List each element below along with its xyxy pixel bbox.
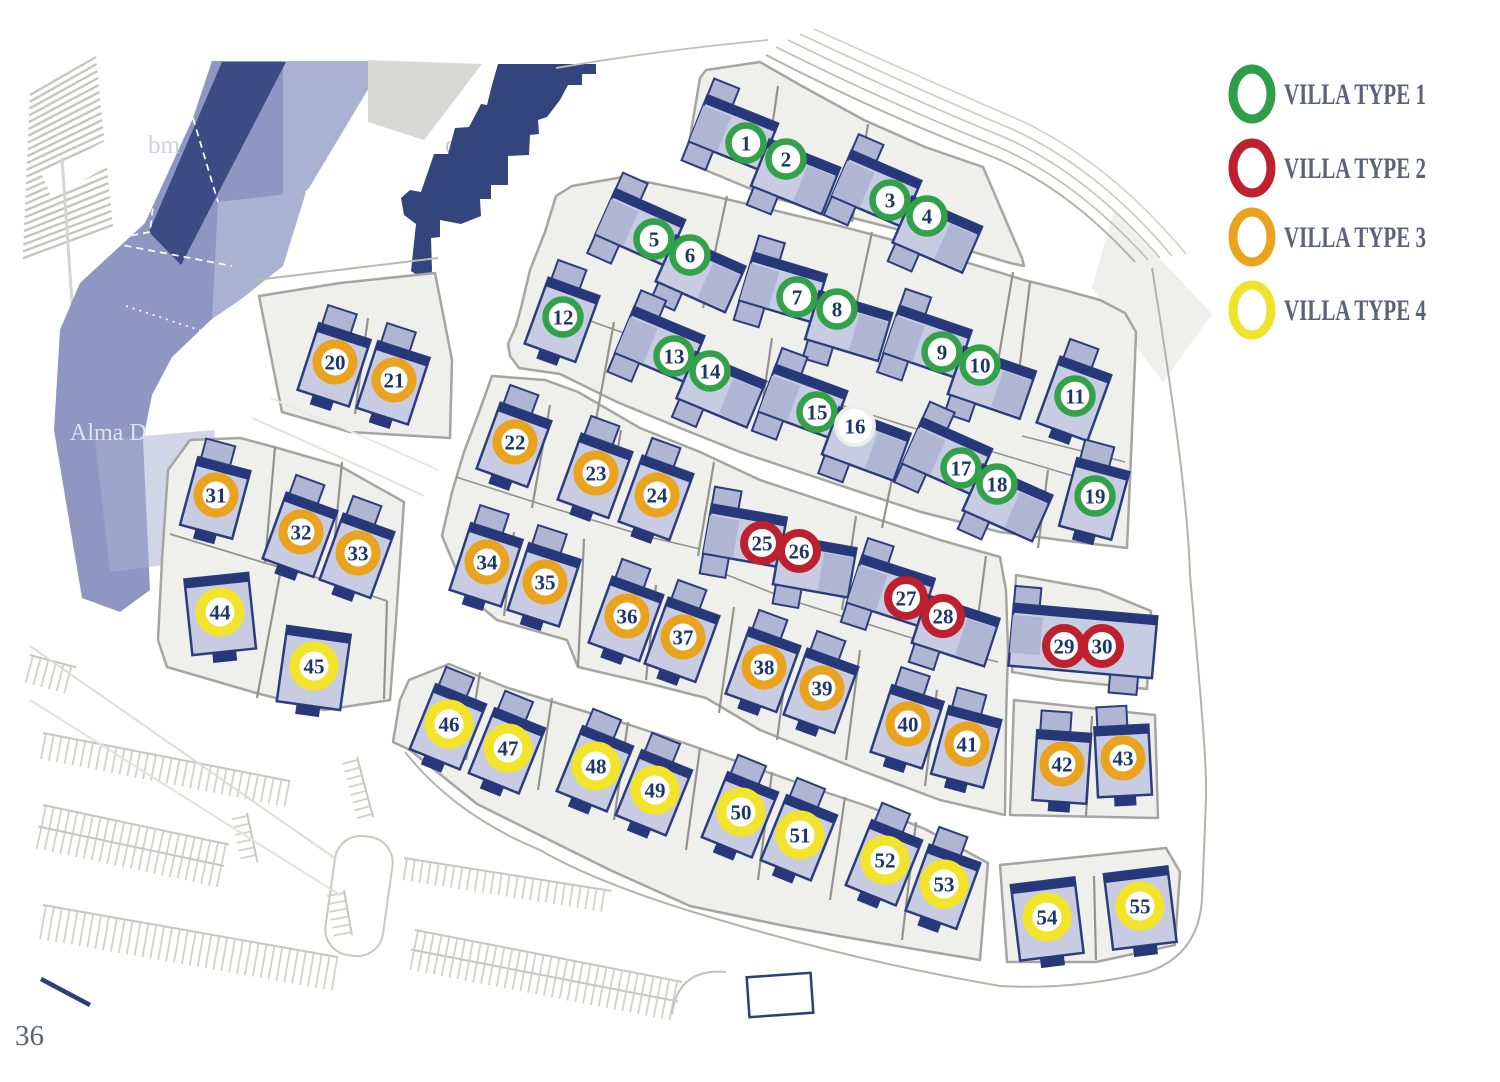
- svg-text:VILLA TYPE 2: VILLA TYPE 2: [1284, 152, 1426, 185]
- svg-text:31: 31: [206, 484, 227, 508]
- svg-text:22: 22: [505, 431, 526, 455]
- svg-text:15: 15: [807, 401, 828, 425]
- svg-text:1: 1: [741, 132, 752, 156]
- svg-text:6: 6: [685, 244, 696, 268]
- svg-text:10: 10: [970, 354, 991, 378]
- svg-text:25: 25: [752, 532, 773, 556]
- svg-text:41: 41: [957, 733, 978, 757]
- svg-text:44: 44: [210, 601, 232, 625]
- svg-text:27: 27: [896, 587, 917, 611]
- svg-text:Alma D: Alma D: [70, 420, 147, 446]
- svg-text:37: 37: [673, 626, 694, 650]
- svg-text:VILLA TYPE 1: VILLA TYPE 1: [1284, 78, 1426, 111]
- svg-text:30: 30: [1092, 635, 1113, 659]
- svg-text:3: 3: [885, 189, 896, 213]
- svg-text:54: 54: [1037, 906, 1059, 930]
- svg-text:28: 28: [933, 605, 954, 629]
- svg-text:12: 12: [553, 306, 574, 330]
- svg-text:18: 18: [987, 473, 1008, 497]
- svg-text:38: 38: [754, 656, 775, 680]
- svg-text:51: 51: [790, 824, 811, 848]
- svg-text:47: 47: [498, 737, 519, 761]
- svg-text:bm: bm: [148, 132, 181, 159]
- svg-text:29: 29: [1054, 635, 1075, 659]
- svg-text:39: 39: [812, 677, 833, 701]
- svg-text:19: 19: [1085, 485, 1106, 509]
- svg-text:5: 5: [649, 228, 660, 252]
- svg-text:50: 50: [731, 801, 752, 825]
- svg-text:53: 53: [934, 873, 955, 897]
- svg-text:9: 9: [937, 341, 948, 365]
- svg-text:43: 43: [1113, 747, 1134, 771]
- svg-text:49: 49: [645, 779, 666, 803]
- svg-text:32: 32: [291, 521, 312, 545]
- svg-text:8: 8: [832, 298, 843, 322]
- svg-text:42: 42: [1052, 753, 1073, 777]
- svg-text:40: 40: [898, 713, 919, 737]
- svg-text:11: 11: [1065, 385, 1085, 409]
- svg-text:55: 55: [1130, 895, 1151, 919]
- svg-text:46: 46: [439, 713, 460, 737]
- svg-text:16: 16: [845, 415, 866, 439]
- svg-text:20: 20: [325, 351, 346, 375]
- svg-text:36: 36: [15, 1020, 44, 1052]
- svg-text:VILLA TYPE 3: VILLA TYPE 3: [1284, 221, 1426, 254]
- svg-text:34: 34: [477, 551, 499, 575]
- svg-text:36: 36: [617, 605, 638, 629]
- svg-text:33: 33: [348, 542, 369, 566]
- svg-text:14: 14: [700, 360, 722, 384]
- svg-text:48: 48: [586, 755, 607, 779]
- svg-text:52: 52: [875, 849, 896, 873]
- svg-text:4: 4: [922, 205, 933, 229]
- svg-text:17: 17: [951, 457, 972, 481]
- svg-text:2: 2: [781, 148, 792, 172]
- svg-text:23: 23: [586, 462, 607, 486]
- svg-text:VILLA TYPE 4: VILLA TYPE 4: [1284, 294, 1426, 327]
- svg-text:35: 35: [535, 571, 556, 595]
- svg-text:24: 24: [647, 484, 669, 508]
- svg-text:13: 13: [664, 345, 685, 369]
- svg-text:21: 21: [384, 369, 405, 393]
- svg-text:45: 45: [304, 655, 325, 679]
- svg-text:7: 7: [792, 286, 803, 310]
- svg-text:26: 26: [789, 540, 810, 564]
